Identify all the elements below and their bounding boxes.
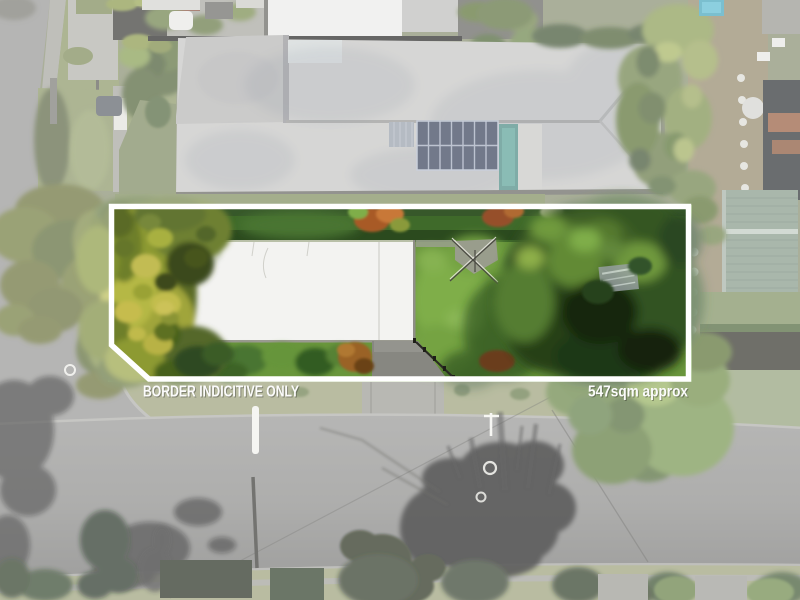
svg-text:BORDER INDICITIVE ONLY: BORDER INDICITIVE ONLY — [143, 383, 300, 400]
svg-text:547sqm approx: 547sqm approx — [588, 383, 688, 400]
